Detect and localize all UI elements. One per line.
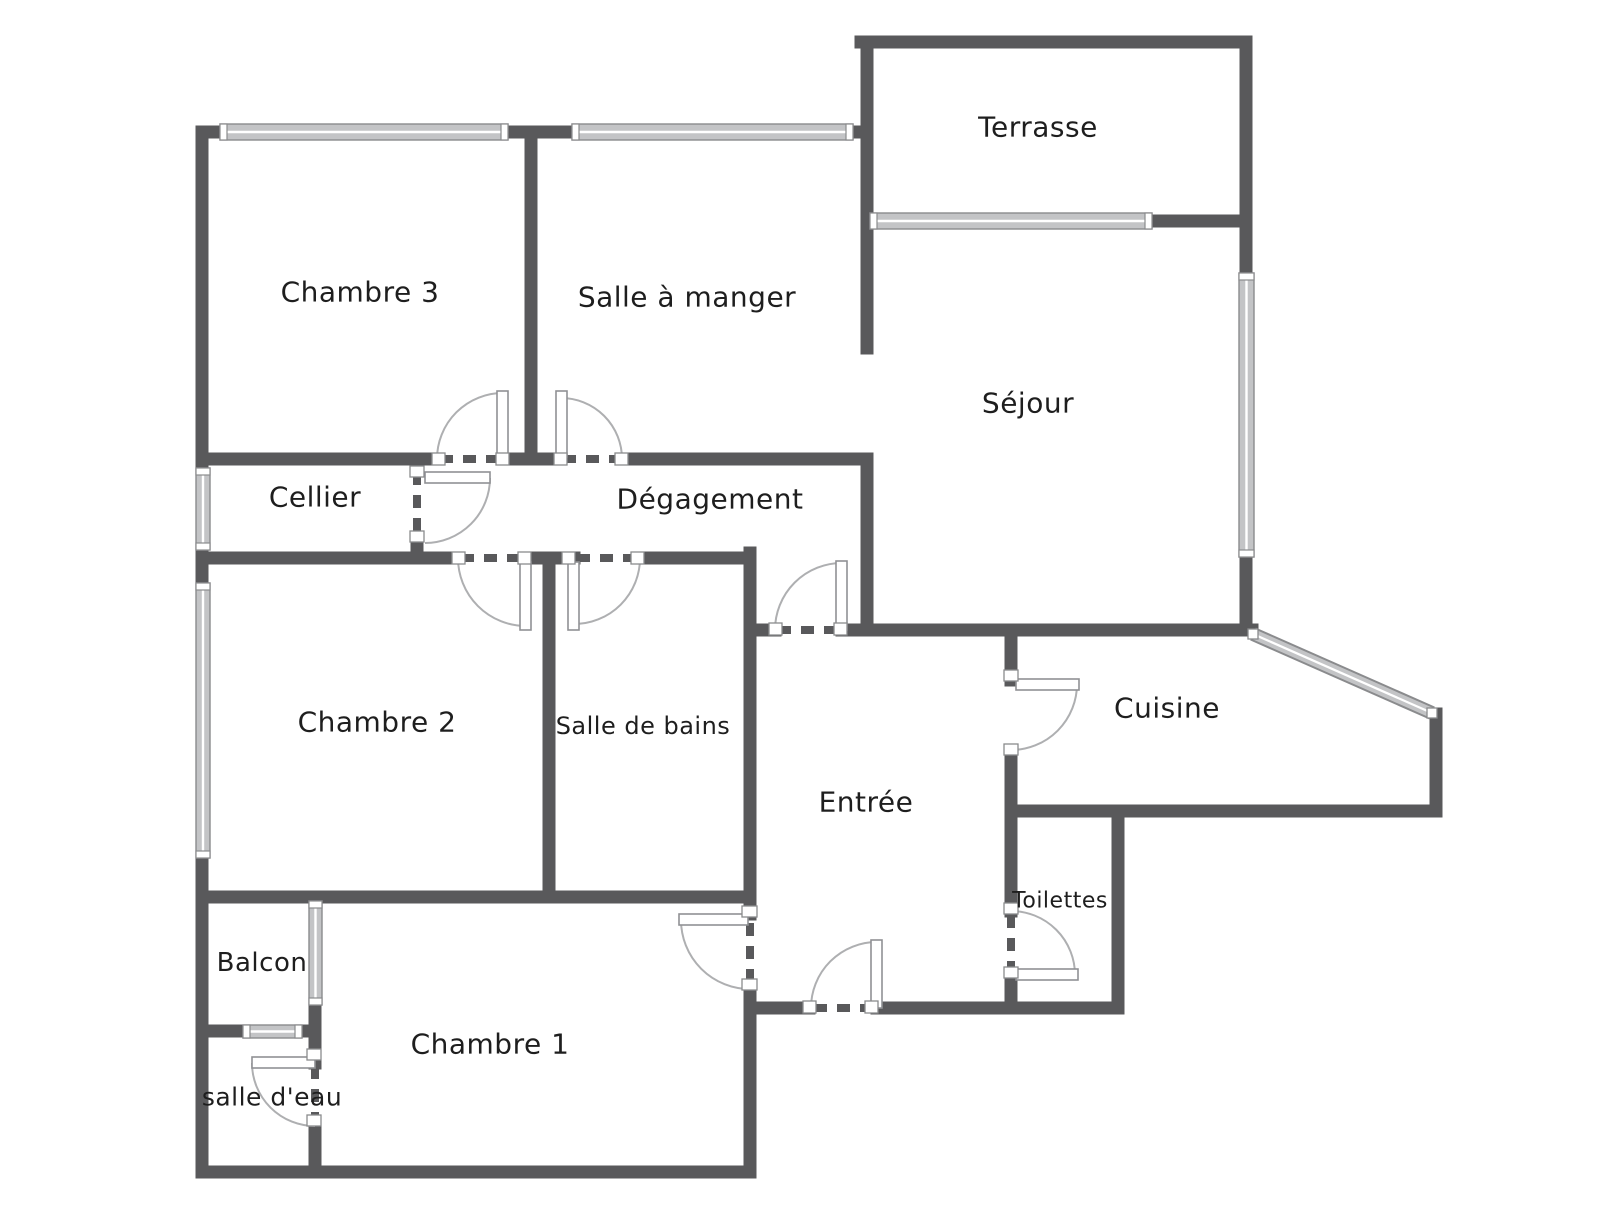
window-cap [870, 213, 877, 229]
room-label-chambre-2: Chambre 2 [298, 706, 457, 739]
room-label-sejour: Séjour [982, 387, 1074, 420]
door-swing-arc [574, 558, 640, 624]
door-leaf [425, 472, 490, 483]
window-cap [501, 124, 508, 140]
room-label-chambre-3: Chambre 3 [281, 276, 440, 309]
window-cap [220, 124, 227, 140]
room-label-cuisine: Cuisine [1114, 692, 1220, 725]
window-cap [309, 901, 322, 908]
door-leaf [1016, 679, 1079, 690]
door-hinge-bracket [615, 453, 628, 465]
door-hinge-bracket [496, 453, 509, 465]
door-hinge-bracket [834, 623, 847, 635]
window-cap [1248, 629, 1258, 639]
room-label-degagement: Dégagement [617, 483, 804, 516]
room-label-salle-de-bains: Salle de bains [556, 712, 731, 740]
room-label-toilettes: Toilettes [1012, 889, 1108, 914]
window-cap [196, 468, 210, 475]
window-cap [196, 583, 210, 590]
room-label-cellier: Cellier [269, 481, 361, 514]
window-cap [196, 543, 210, 550]
door-hinge-bracket [518, 552, 531, 564]
door-hinge-bracket [803, 1001, 816, 1013]
room-label-chambre-1: Chambre 1 [411, 1028, 570, 1061]
door-hinge-bracket [562, 552, 575, 564]
floor-plan: Terrasse Chambre 3 Salle à manger Séjour… [0, 0, 1600, 1212]
room-label-salle-d-eau: salle d'eau [202, 1083, 342, 1112]
window-cap [295, 1025, 302, 1038]
door-hinge-bracket [410, 466, 424, 477]
door-leaf [252, 1057, 315, 1068]
door-hinge-bracket [631, 552, 644, 564]
room-label-entree: Entrée [819, 786, 914, 819]
door-hinge-bracket [410, 531, 424, 542]
window-cap [846, 124, 853, 140]
door-hinge-bracket [452, 552, 465, 564]
window-cap [1239, 273, 1254, 280]
door-leaf [1016, 969, 1078, 980]
door-hinge-bracket [307, 1115, 321, 1126]
door-leaf [679, 914, 748, 925]
door-hinge-bracket [742, 979, 757, 990]
door-swing-arc [425, 478, 490, 543]
window-cap [196, 851, 210, 858]
room-label-terrasse: Terrasse [978, 111, 1098, 144]
door-swing-arc [561, 398, 622, 459]
door-leaf [520, 562, 531, 630]
door-swing-arc [1011, 911, 1075, 975]
door-hinge-bracket [742, 906, 757, 917]
window-cap [309, 998, 322, 1005]
door-swing-arc [1011, 684, 1077, 750]
floor-plan-svg [0, 0, 1600, 1212]
door-swing-arc [775, 563, 842, 630]
door-leaf [497, 391, 508, 457]
window-glass-line [1253, 634, 1432, 713]
door-swing-arc [437, 393, 503, 459]
window-cap [1427, 708, 1437, 718]
door-hinge-bracket [307, 1049, 321, 1060]
door-leaf [836, 561, 847, 630]
door-hinge-bracket [1004, 744, 1018, 755]
door-hinge-bracket [1004, 670, 1018, 681]
window-cap [1145, 213, 1152, 229]
window-cap [243, 1025, 250, 1038]
door-hinge-bracket [432, 453, 445, 465]
window-cap [1239, 550, 1254, 557]
door-hinge-bracket [1004, 967, 1018, 978]
window-cap [572, 124, 579, 140]
room-label-balcon: Balcon [217, 948, 308, 978]
door-hinge-bracket [769, 623, 782, 635]
door-swing-arc [681, 920, 750, 989]
door-leaf [556, 391, 567, 457]
door-swing-arc [458, 558, 526, 626]
door-leaf [871, 940, 882, 1008]
door-hinge-bracket [554, 453, 567, 465]
door-swing-arc [811, 942, 877, 1008]
door-leaf [568, 562, 579, 630]
room-label-salle-a-manger: Salle à manger [578, 281, 796, 314]
door-hinge-bracket [865, 1001, 878, 1013]
